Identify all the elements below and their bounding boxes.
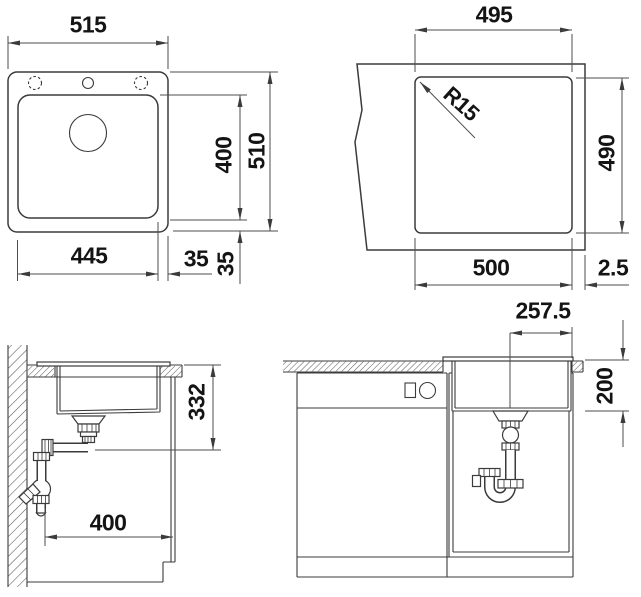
cabinet-front — [27, 377, 175, 582]
worktop-section-right — [161, 366, 182, 377]
pipe-nut-2 — [34, 453, 50, 461]
optional-tap-hole-left — [29, 77, 42, 90]
dim-drain-offset: 257.5 — [515, 300, 570, 323]
appliance-dial-symbol — [420, 383, 436, 399]
dim-rim-bottom: 35 — [215, 252, 238, 277]
front-section-view — [283, 320, 629, 577]
worktop-section-left — [28, 366, 54, 377]
dim-min-cabinet-depth: 400 — [90, 512, 127, 535]
cabinets — [297, 373, 573, 577]
tap-hole — [83, 78, 94, 89]
bowl-section — [57, 366, 160, 414]
trap-side-fitting — [473, 476, 481, 487]
strainer-flange — [72, 416, 105, 424]
strainer-flange-front — [493, 411, 528, 421]
worktop-front-hatch-right — [573, 362, 583, 372]
dim-cutout-width-top: 495 — [476, 4, 513, 27]
side-section-view — [8, 345, 221, 587]
sink-flange-front — [443, 357, 573, 361]
appliance-button-symbol — [405, 383, 416, 398]
dim-cutout-depth: 490 — [596, 135, 619, 172]
top-view — [8, 36, 278, 284]
pipe-nut-3 — [33, 496, 49, 504]
cutout-view — [355, 28, 629, 291]
worktop-front-hatch — [283, 362, 443, 372]
dim-cutout-width: 500 — [473, 257, 510, 280]
strainer-neck — [81, 432, 97, 437]
dim-rim-right: 35 — [184, 248, 209, 271]
dim-overall-width: 515 — [70, 14, 107, 37]
wall-hatch — [8, 345, 27, 587]
sink-technical-drawing: 515 445 35 35 400 510 495 R15 490 500 2.… — [0, 0, 641, 597]
drain-hole — [70, 115, 107, 152]
drain-ball-joint — [503, 427, 519, 443]
dim-bowl-length: 400 — [213, 137, 236, 174]
dim-drain-height: 332 — [186, 384, 209, 421]
optional-tap-hole-right — [135, 77, 148, 90]
bowl-outline — [18, 95, 158, 218]
tailpiece — [83, 437, 95, 443]
dim-overall-depth: 510 — [246, 133, 269, 170]
dim-edge-offset: 2.5 — [598, 257, 628, 280]
dim-bowl-depth: 200 — [594, 368, 617, 405]
top-view-dimension-lines — [8, 36, 278, 284]
dim-bowl-width: 445 — [71, 245, 108, 268]
pipe-end-cap — [37, 513, 46, 516]
bowl-front — [452, 361, 571, 411]
sink-flange — [37, 362, 170, 366]
worktop-outline — [355, 64, 585, 250]
